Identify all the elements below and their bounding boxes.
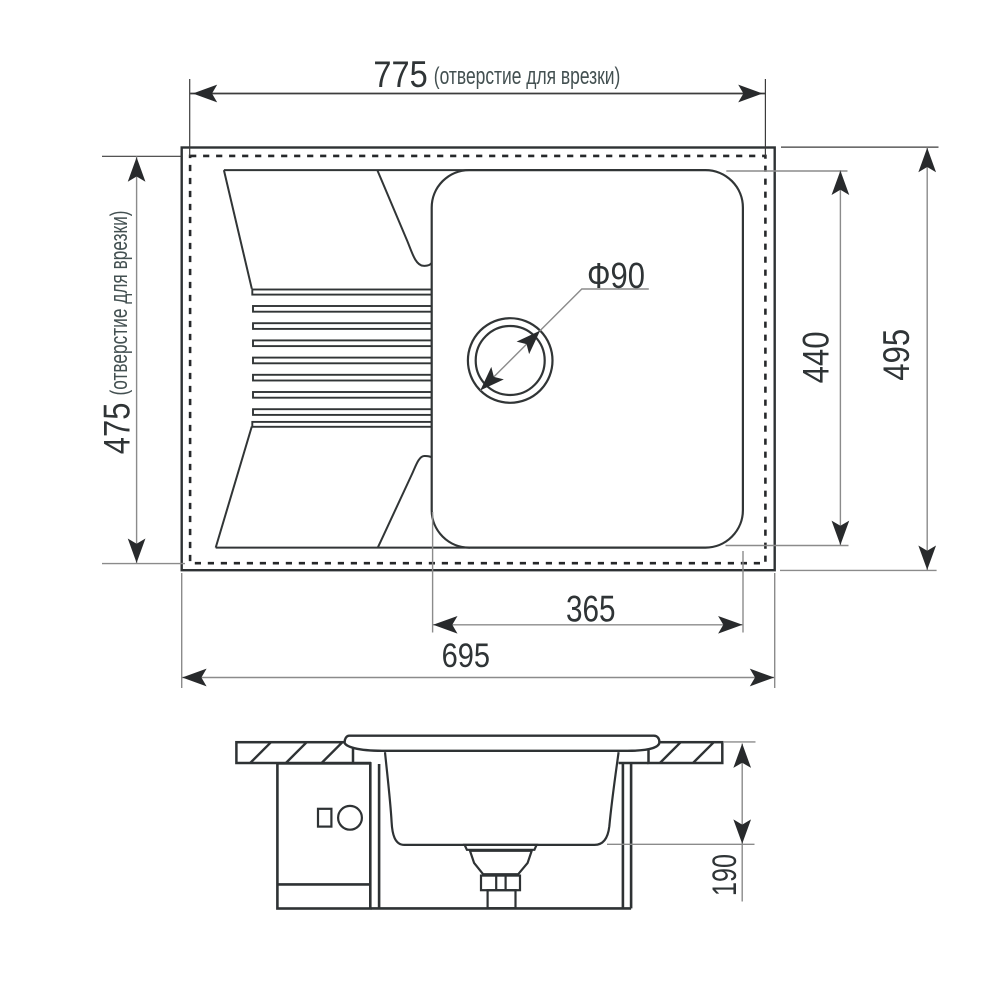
svg-text:190: 190 (706, 854, 744, 896)
svg-text:475: 475 (96, 403, 137, 455)
svg-text:440: 440 (795, 331, 836, 383)
svg-text:Ф90: Ф90 (587, 255, 645, 296)
svg-text:695: 695 (442, 637, 490, 675)
svg-text:495: 495 (876, 329, 917, 381)
svg-text:(отверстие для врезки): (отверстие для врезки) (106, 211, 133, 396)
svg-text:(отверстие для врезки): (отверстие для врезки) (434, 63, 621, 90)
svg-text:365: 365 (566, 589, 616, 630)
svg-text:775: 775 (373, 54, 427, 95)
